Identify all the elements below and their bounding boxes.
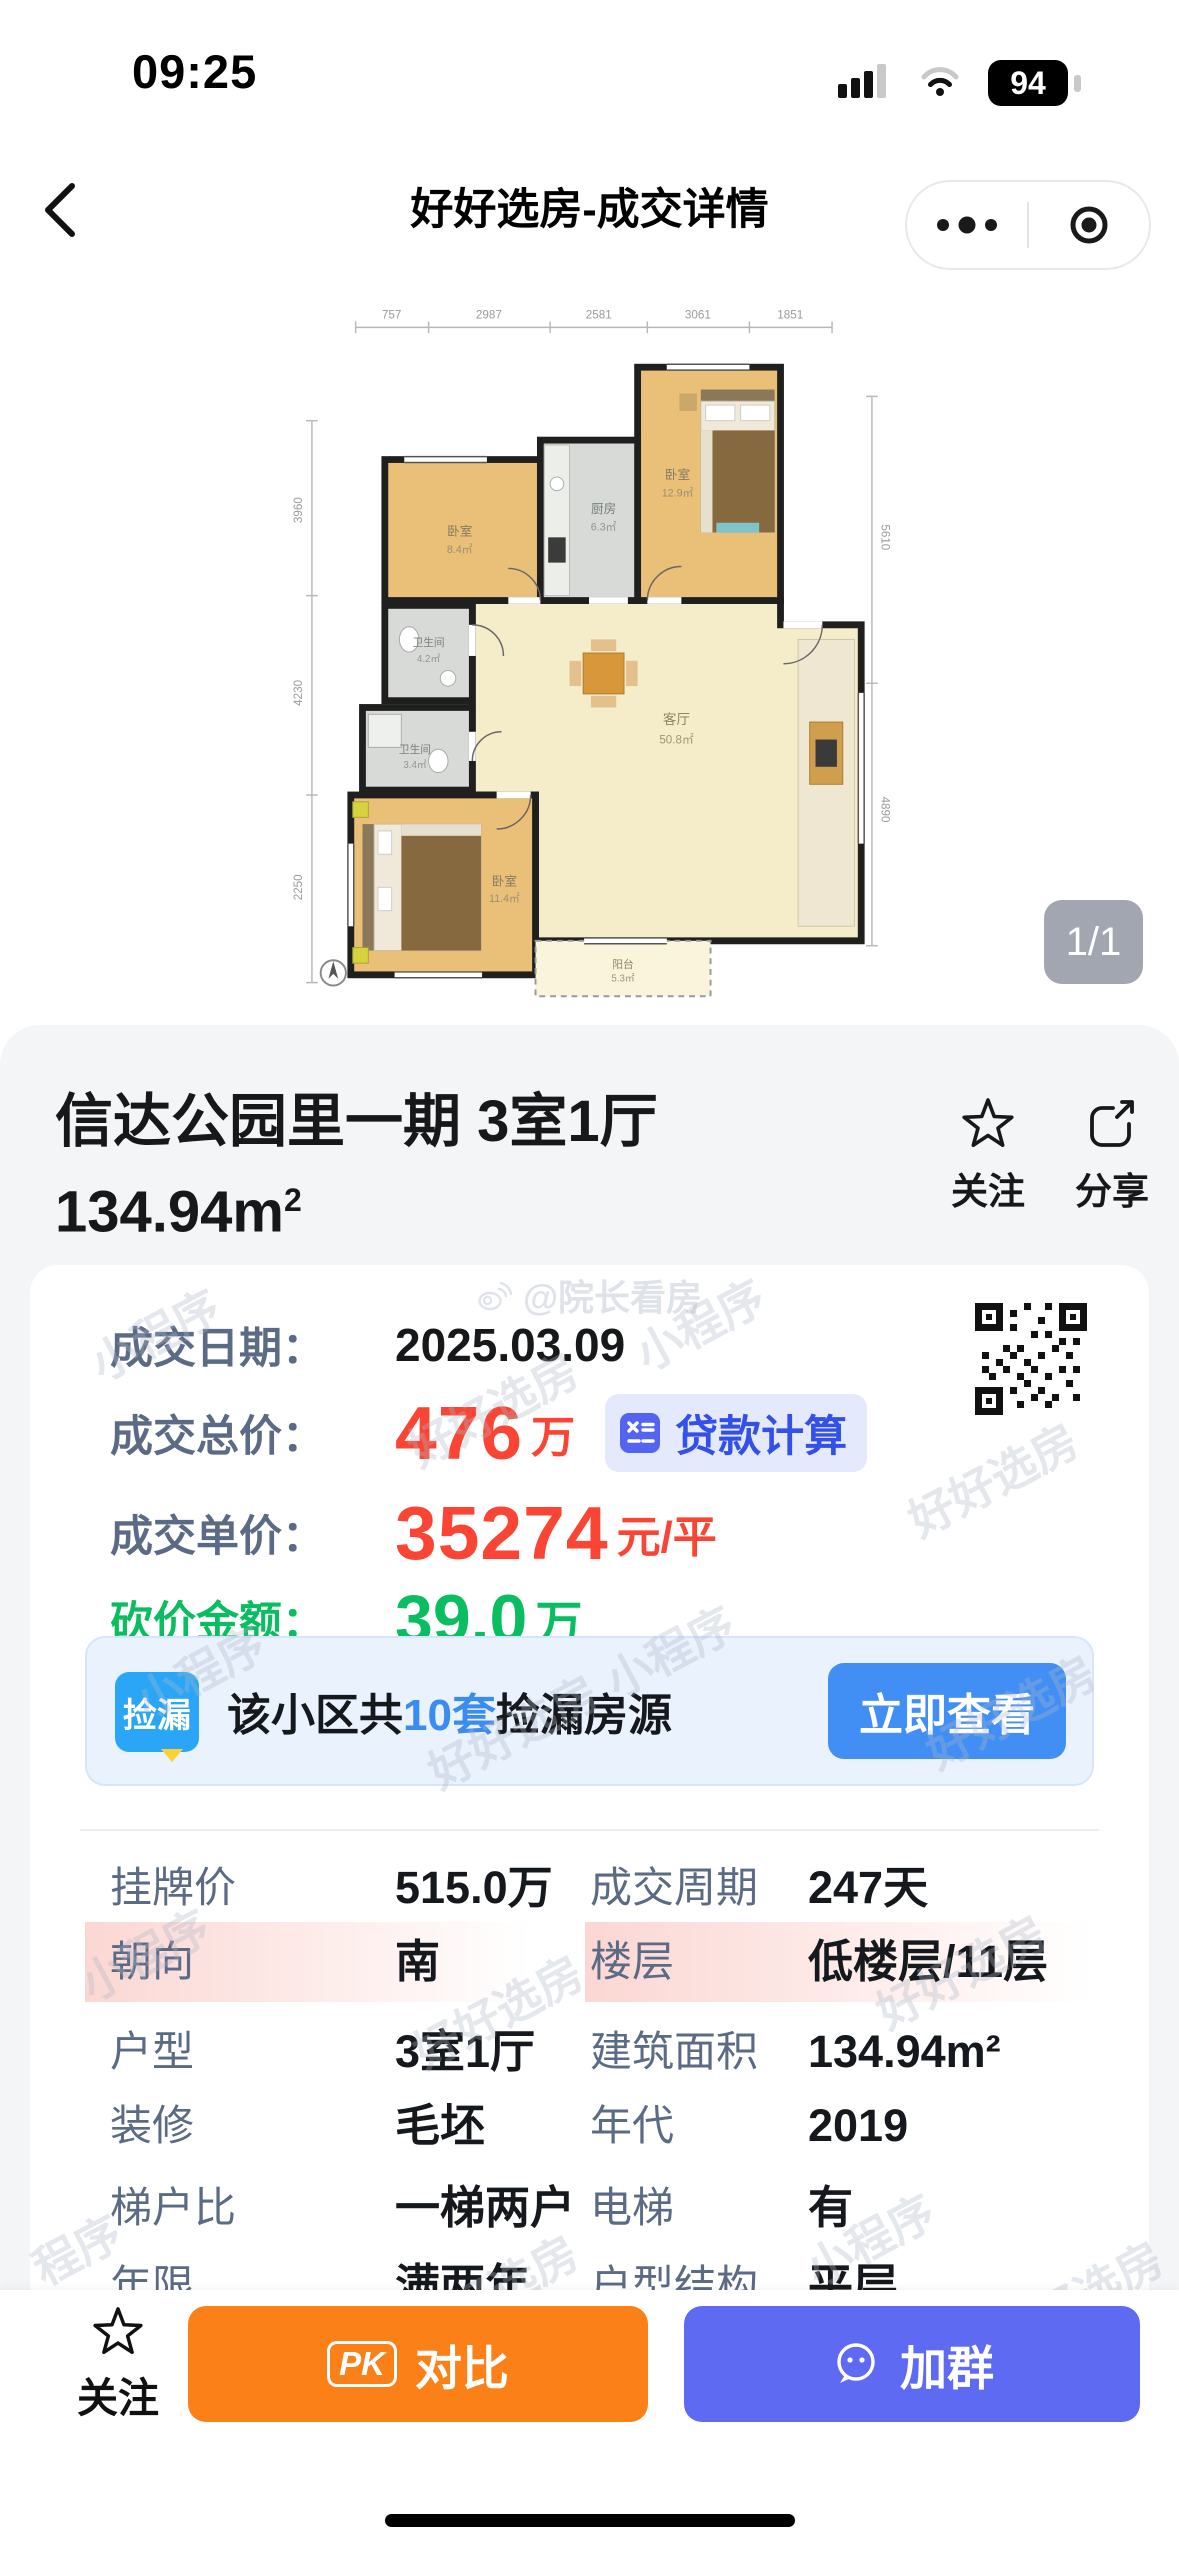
floor-plan-image: 757 2987 2581 3061 1851 3960 4230 2250 5… xyxy=(284,304,894,1004)
more-menu-button[interactable] xyxy=(907,182,1027,268)
star-icon xyxy=(959,1097,1017,1149)
svg-text:4.2㎡: 4.2㎡ xyxy=(417,653,441,665)
chevron-left-icon xyxy=(40,180,80,240)
compare-button[interactable]: PK 对比 xyxy=(188,2306,648,2422)
table-row: 梯户比 一梯两户 电梯 有 xyxy=(85,2173,1094,2243)
deal-date-value: 2025.03.09 xyxy=(395,1318,625,1372)
svg-text:4230: 4230 xyxy=(292,679,305,705)
loan-calculator-label: 贷款计算 xyxy=(675,1402,847,1464)
room-label: 卧室 xyxy=(665,467,690,482)
svg-text:3.4㎡: 3.4㎡ xyxy=(403,759,427,771)
room-label: 卧室 xyxy=(447,523,472,538)
detail-value: 2019 xyxy=(808,2091,908,2161)
detail-value: 3室1厅 xyxy=(395,2017,535,2087)
share-button[interactable]: 分享 xyxy=(1075,1097,1149,1265)
qr-code xyxy=(975,1303,1087,1415)
svg-text:2581: 2581 xyxy=(586,309,612,322)
badge-wedge xyxy=(161,1749,183,1762)
room-label: 卧室 xyxy=(492,873,517,888)
bargain-banner: 捡漏 该小区共10套捡漏房源 立即查看 xyxy=(85,1636,1094,1786)
share-icon xyxy=(1084,1097,1140,1149)
svg-text:3960: 3960 xyxy=(292,497,305,523)
table-row: 户型 3室1厅 建筑面积 134.94m² xyxy=(85,2017,1094,2087)
svg-text:5.3㎡: 5.3㎡ xyxy=(611,973,635,985)
listing-area: 134.94m xyxy=(55,1179,284,1244)
bargain-badge: 捡漏 xyxy=(115,1672,199,1752)
detail-label: 朝向 xyxy=(110,1927,194,1997)
phone-screen: 09:25 94 好好选房-成交详情 xyxy=(0,0,1179,2556)
detail-label: 梯户比 xyxy=(110,2173,236,2243)
detail-value: 134.94m² xyxy=(808,2017,1001,2087)
floorplan-gallery[interactable]: 757 2987 2581 3061 1851 3960 4230 2250 5… xyxy=(0,300,1179,1025)
detail-label: 户型 xyxy=(110,2017,194,2087)
bottom-follow-button[interactable]: 关注 xyxy=(56,2306,180,2424)
svg-text:8.4㎡: 8.4㎡ xyxy=(447,544,473,556)
deal-unit-price-label: 成交单价： xyxy=(110,1502,395,1564)
deal-total-row: 成交总价： 476 万 贷款计算 xyxy=(110,1383,867,1483)
detail-label: 年代 xyxy=(590,2091,674,2161)
detail-label: 电梯 xyxy=(590,2173,674,2243)
loan-calculator-button[interactable]: 贷款计算 xyxy=(605,1394,867,1472)
deal-date-row: 成交日期： 2025.03.09 xyxy=(110,1313,625,1377)
room-label: 厨房 xyxy=(591,501,616,516)
deal-unit-price-value: 35274 xyxy=(395,1490,609,1576)
svg-text:2250: 2250 xyxy=(292,874,305,900)
svg-text:5610: 5610 xyxy=(879,524,892,550)
table-row-highlighted: 朝向 南 楼层 低楼层/11层 xyxy=(85,1927,1094,1997)
room-label: 卫生间 xyxy=(399,743,431,756)
svg-text:50.8㎡: 50.8㎡ xyxy=(659,733,694,746)
more-dots-icon xyxy=(934,215,1000,235)
svg-text:6.3㎡: 6.3㎡ xyxy=(591,522,617,534)
svg-text:1851: 1851 xyxy=(777,309,803,322)
record-circle-icon xyxy=(1066,202,1112,248)
follow-button[interactable]: 关注 xyxy=(951,1097,1025,1265)
cellular-signal-icon xyxy=(838,64,886,98)
detail-label: 成交周期 xyxy=(590,1853,758,1923)
deal-date-label: 成交日期： xyxy=(110,1314,395,1376)
listing-actions: 关注 分享 xyxy=(951,1083,1149,1265)
deal-total-label: 成交总价： xyxy=(110,1402,395,1464)
calculator-icon xyxy=(617,1410,663,1456)
back-button[interactable] xyxy=(40,178,96,242)
nav-bar: 好好选房-成交详情 xyxy=(0,140,1179,280)
listing-title: 信达公园里一期 3室1厅 134.94m2 xyxy=(55,1083,658,1265)
svg-text:757: 757 xyxy=(382,309,401,322)
deal-total-unit: 万 xyxy=(531,1401,575,1465)
compare-label: 对比 xyxy=(415,2330,509,2399)
detail-value: 515.0万 xyxy=(395,1853,553,1923)
room-label: 客厅 xyxy=(663,711,690,727)
home-indicator[interactable] xyxy=(385,2514,795,2527)
detail-label: 挂牌价 xyxy=(110,1853,236,1923)
deal-total-value: 476 xyxy=(395,1390,523,1476)
table-row: 装修 毛坯 年代 2019 xyxy=(85,2091,1094,2161)
bargain-count: 10套 xyxy=(403,1679,496,1743)
follow-label: 关注 xyxy=(951,1161,1025,1215)
share-label: 分享 xyxy=(1075,1161,1149,1215)
room-label: 阳台 xyxy=(612,958,633,971)
detail-label: 建筑面积 xyxy=(590,2017,758,2087)
deal-info-card: @院长看房 xyxy=(30,1265,1149,2327)
join-group-label: 加群 xyxy=(900,2330,994,2399)
section-divider xyxy=(80,1829,1099,1831)
miniprogram-capsule xyxy=(905,180,1151,270)
battery-tip xyxy=(1074,75,1081,92)
deal-unit-price-row: 成交单价： 35274 元/平 xyxy=(110,1489,717,1577)
bargain-text: 该小区共10套捡漏房源 xyxy=(227,1638,672,1784)
detail-value: 低楼层/11层 xyxy=(808,1927,1048,1997)
svg-text:4890: 4890 xyxy=(879,797,892,823)
svg-text:12.9㎡: 12.9㎡ xyxy=(662,488,694,500)
join-group-button[interactable]: 加群 xyxy=(684,2306,1140,2422)
battery-icon: 94 xyxy=(988,60,1068,106)
chat-bubble-icon xyxy=(830,2338,882,2390)
wifi-icon xyxy=(920,64,960,96)
pk-icon: PK xyxy=(327,2341,397,2387)
svg-text:3061: 3061 xyxy=(685,309,711,322)
close-minimize-button[interactable] xyxy=(1029,182,1149,268)
detail-label: 装修 xyxy=(110,2091,194,2161)
detail-value: 南 xyxy=(395,1927,440,1997)
deal-unit-price-suffix: 元/平 xyxy=(617,1501,717,1565)
listing-header: 信达公园里一期 3室1厅 134.94m2 关注 分享 xyxy=(0,1025,1179,1265)
svg-text:2987: 2987 xyxy=(476,309,502,322)
detail-value: 有 xyxy=(808,2173,853,2243)
detail-value: 毛坯 xyxy=(395,2091,485,2161)
bottom-follow-label: 关注 xyxy=(77,2364,159,2424)
view-now-button[interactable]: 立即查看 xyxy=(828,1663,1066,1759)
compass-icon xyxy=(321,960,346,985)
status-time: 09:25 xyxy=(132,44,257,99)
star-icon xyxy=(91,2306,145,2356)
detail-value: 247天 xyxy=(808,1853,928,1923)
svg-text:11.4㎡: 11.4㎡ xyxy=(489,893,520,905)
detail-label: 楼层 xyxy=(590,1927,674,1997)
weibo-icon xyxy=(477,1279,513,1311)
table-row: 挂牌价 515.0万 成交周期 247天 xyxy=(85,1853,1094,1923)
gallery-page-badge: 1/1 xyxy=(1044,900,1143,984)
battery-percent: 94 xyxy=(1010,65,1046,102)
detail-value: 一梯两户 xyxy=(395,2173,575,2243)
room-label: 卫生间 xyxy=(413,636,445,649)
